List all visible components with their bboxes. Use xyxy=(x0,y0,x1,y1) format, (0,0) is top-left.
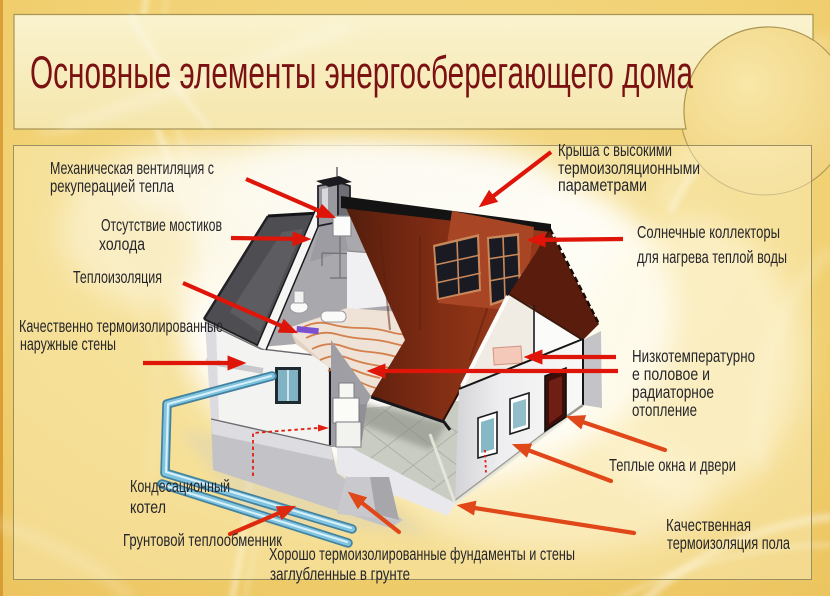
svg-text:е половое и: е половое и xyxy=(632,364,710,384)
svg-text:Солнечные коллекторы: Солнечные коллекторы xyxy=(637,222,780,242)
svg-text:отопление: отопление xyxy=(632,400,697,420)
svg-text:радиаторное: радиаторное xyxy=(632,382,714,402)
svg-text:Отсутствие мостиков: Отсутствие мостиков xyxy=(101,215,222,235)
svg-text:Механическая вентиляция с: Механическая вентиляция с xyxy=(50,158,214,178)
svg-text:Качественная: Качественная xyxy=(666,515,751,535)
svg-text:котел: котел xyxy=(130,497,166,517)
svg-text:параметрами: параметрами xyxy=(558,175,647,195)
svg-text:Кондесационный: Кондесационный xyxy=(130,476,230,496)
svg-text:холода: холода xyxy=(99,234,145,254)
svg-text:Хорошо термоизолированные фун: Хорошо термоизолированные фундаменты и с… xyxy=(269,544,575,564)
svg-text:рекуперацией тепла: рекуперацией тепла xyxy=(50,176,174,196)
svg-text:Качественно термоизолированные: Качественно термоизолированные xyxy=(19,316,223,336)
svg-text:термоизоляция пола: термоизоляция пола xyxy=(667,533,790,553)
svg-text:для нагрева теплой воды: для нагрева теплой воды xyxy=(637,247,787,267)
svg-text:Низкотемпературно: Низкотемпературно xyxy=(632,346,755,366)
svg-text:заглубленные в грунте: заглубленные в грунте xyxy=(270,564,410,584)
svg-text:Основные элементы энергосберег: Основные элементы энергосберегающего дом… xyxy=(30,47,694,98)
svg-text:наружные стены: наружные стены xyxy=(20,334,116,354)
svg-text:Теплоизоляция: Теплоизоляция xyxy=(73,267,162,287)
svg-text:Грунтовой теплообменник: Грунтовой теплообменник xyxy=(123,530,282,550)
svg-text:Теплые окна и двери: Теплые окна и двери xyxy=(609,455,736,475)
svg-text:Крыша с высокими: Крыша с высокими xyxy=(558,140,672,160)
